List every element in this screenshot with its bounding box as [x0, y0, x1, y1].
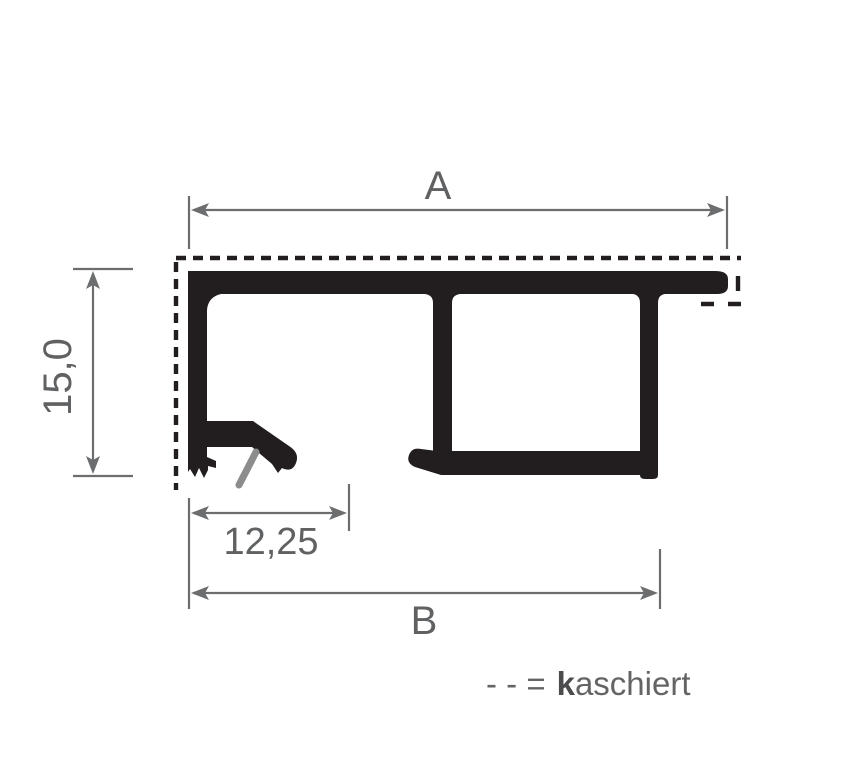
legend-kaschiert: - - =kaschiert	[486, 667, 691, 700]
profile-left-leg-clip	[188, 271, 297, 478]
legend-term-bold: k	[557, 665, 575, 702]
dim-label-b: B	[411, 601, 438, 641]
profile-bottom-bar	[408, 449, 657, 475]
profile-top-flange	[188, 271, 728, 294]
dim-label-height: 15,0	[38, 338, 78, 416]
dimension-a	[189, 196, 727, 249]
profile-middle-web	[425, 294, 460, 452]
dimension-height	[73, 269, 133, 476]
legend-term-rest: aschiert	[575, 665, 691, 702]
clip-pin	[239, 452, 256, 485]
profile-drawing	[0, 0, 849, 769]
dim-label-clip-offset: 12,25	[223, 523, 318, 561]
dim-label-a: A	[425, 166, 452, 206]
technical-drawing-page: A 15,0 12,25 B - - =kaschiert	[0, 0, 849, 769]
profile-inner-fillet	[207, 294, 221, 310]
profile-shape	[188, 271, 728, 485]
legend-dash-symbol: - - =	[486, 665, 546, 702]
